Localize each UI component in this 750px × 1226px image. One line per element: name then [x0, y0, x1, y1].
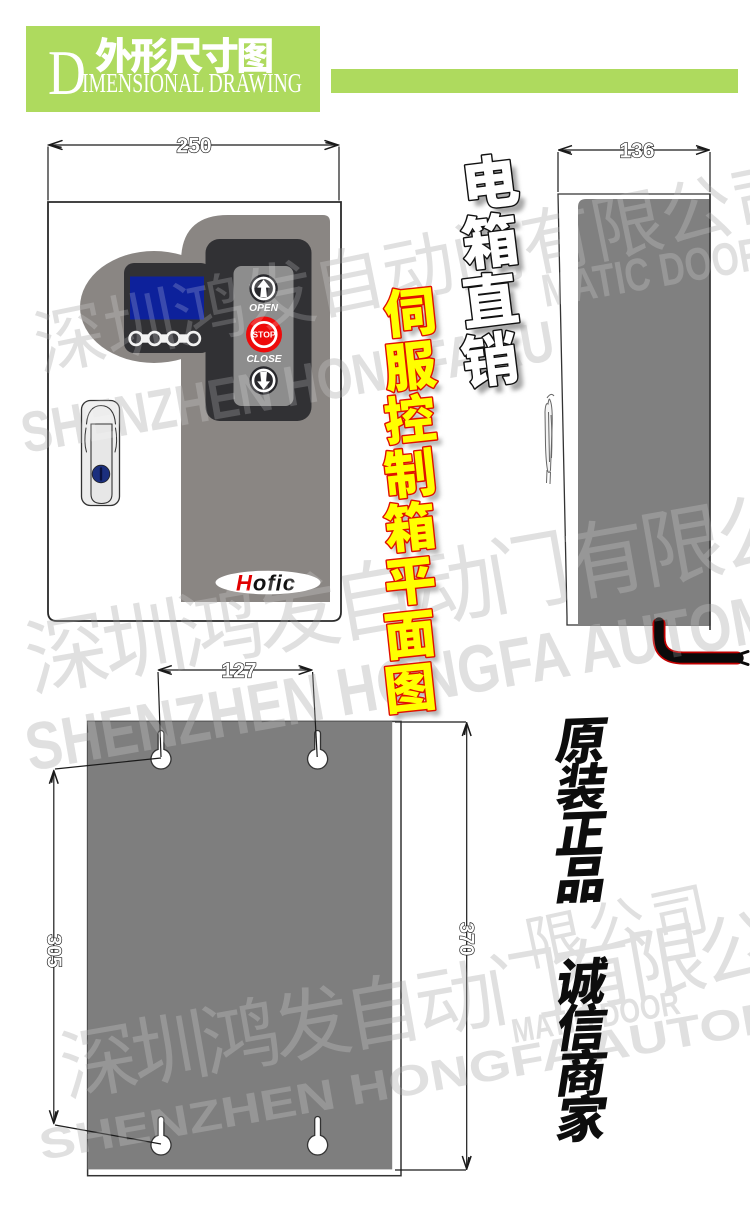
- svg-text:D: D: [48, 37, 86, 108]
- svg-text:IMENSIONAL DRAWING: IMENSIONAL DRAWING: [82, 68, 302, 98]
- svg-text:305: 305: [42, 934, 64, 967]
- svg-text:250: 250: [176, 135, 211, 158]
- svg-text:136: 136: [619, 140, 654, 163]
- svg-text:STOP: STOP: [252, 330, 276, 340]
- svg-text:370: 370: [455, 922, 477, 955]
